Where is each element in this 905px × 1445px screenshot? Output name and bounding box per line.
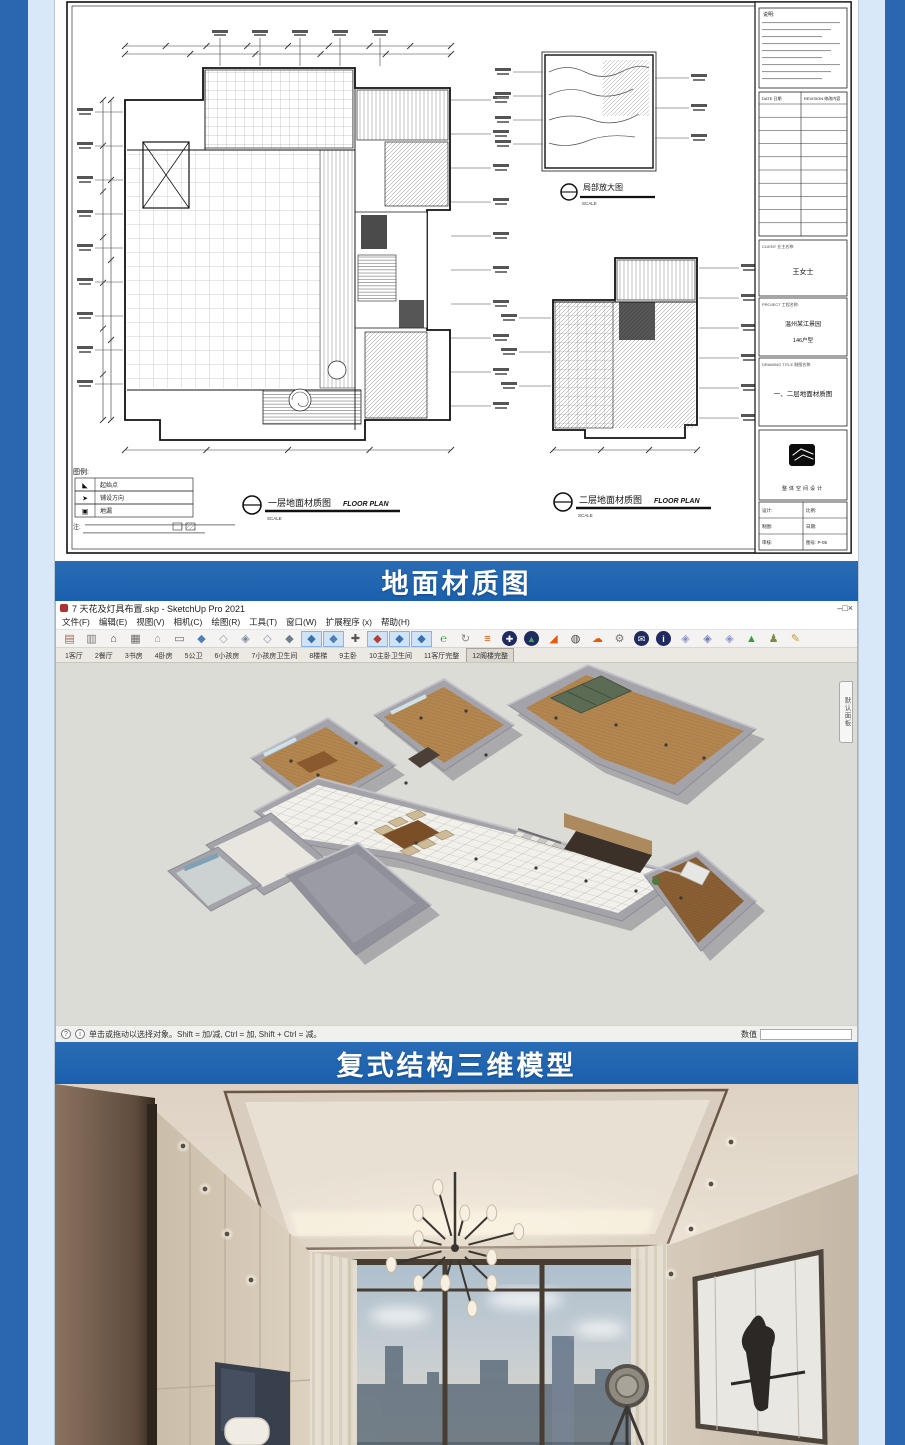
svg-text:温州某江景园: 温州某江景园 [785, 320, 821, 328]
asset-tree-icon[interactable]: ▲ [524, 631, 539, 646]
menu-item-7[interactable]: 扩展程序 (x) [326, 616, 372, 628]
plan1-first-floor [125, 68, 450, 440]
svg-text:整体空间设计: 整体空间设计 [782, 485, 824, 492]
menu-bar: 文件(F)编辑(E)视图(V)相机(C)绘图(R)工具(T)窗口(W)扩展程序 … [56, 615, 857, 630]
scene-tab-11[interactable]: 11客厅完整 [419, 649, 464, 662]
viewport-3d[interactable]: 默认面板 [56, 663, 857, 1025]
measurements-label: 数值 [741, 1029, 757, 1040]
white-chair [225, 1418, 269, 1445]
cube-hidden-icon[interactable]: ◇ [257, 631, 278, 647]
model-3d-duplex [56, 663, 857, 1025]
banner-floor-material: 地面材质图 [55, 561, 858, 601]
status-hint-text: 单击或拖动以选择对象。Shift = 加/减, Ctrl = 加, Shift … [89, 1029, 741, 1040]
svg-text:王女士: 王女士 [793, 267, 814, 276]
cad-floor-material-sheet: 一层地面材质图 FLOOR PLAN SCALE 二层地面材质图 FLOOR P… [55, 0, 858, 561]
banner-floor-material-text: 地面材质图 [382, 562, 532, 601]
scene-tabs-bar: 1客厅2餐厅3书房4卧房5公卫6小孩房7小孩房卫生间8楼梯9主卧10主卧卫生间1… [56, 648, 857, 663]
banner-duplex-model-text: 复式结构三维模型 [337, 1044, 577, 1083]
archive-box-icon[interactable]: ▦ [125, 631, 146, 647]
people-scale-icon[interactable]: ♟ [763, 631, 784, 647]
scene-tab-5[interactable]: 5公卫 [180, 649, 208, 662]
cad-drawing: 一层地面材质图 FLOOR PLAN SCALE 二层地面材质图 FLOOR P… [55, 0, 858, 561]
titleblock-field: 制图: [762, 523, 772, 530]
svg-text:一、二层地面材质图: 一、二层地面材质图 [774, 389, 833, 398]
legend-label: 地漏 [100, 507, 112, 515]
menu-item-5[interactable]: 工具(T) [249, 616, 277, 628]
curtain-left [310, 1252, 357, 1445]
render-batch-icon[interactable]: ✉ [634, 631, 649, 646]
sketchup-title-bar: 7 天花及灯具布置.skp - SketchUp Pro 2021 –□× [56, 601, 857, 615]
cube-wire-icon[interactable]: ◇ [213, 631, 234, 647]
scene-tab-8[interactable]: 8楼梯 [304, 649, 332, 662]
menu-item-3[interactable]: 相机(C) [174, 616, 203, 628]
help-icon[interactable]: ? [61, 1029, 71, 1039]
rotate-tool-icon[interactable]: ◆ [367, 631, 388, 647]
cloud-upload-icon[interactable]: ☁ [587, 631, 608, 647]
svg-text:一层地面材质图: 一层地面材质图 [268, 497, 331, 508]
svg-text:PROJECT 工程名称:: PROJECT 工程名称: [762, 301, 799, 307]
titleblock-field: 设计: [762, 507, 772, 514]
render-info-icon[interactable]: i [656, 631, 671, 646]
default-tray-tab[interactable]: 默认面板 [839, 681, 853, 743]
component-box-icon[interactable]: ▥ [81, 631, 102, 647]
svg-text:146户型: 146户型 [793, 336, 814, 344]
scene-tab-12[interactable]: 12阁楼完整 [466, 648, 514, 662]
svg-text:说明:: 说明: [763, 11, 774, 18]
scene-tab-9[interactable]: 9主卧 [334, 649, 362, 662]
cube-xray-icon[interactable]: ◈ [235, 631, 256, 647]
title-block: 说明: DATE 日期 REVISION 修改内容 CLIENT 业主名称: 王… [755, 2, 851, 553]
scene-tab-3[interactable]: 3书房 [120, 649, 148, 662]
left-wood-door [55, 1084, 155, 1445]
scene-tab-4[interactable]: 4卧房 [150, 649, 178, 662]
floor-drain-icon: ▣ [82, 509, 89, 516]
svg-text:SCALE: SCALE [582, 201, 597, 206]
analysis-mountain-icon[interactable]: ▲ [741, 631, 762, 647]
svg-text:局部放大图: 局部放大图 [583, 182, 623, 192]
info-icon[interactable]: i [75, 1029, 85, 1039]
terrain-mountain-icon[interactable]: ◢ [543, 631, 564, 647]
layers-orange-icon[interactable]: ≡ [477, 631, 498, 647]
measurements-input[interactable] [760, 1029, 852, 1040]
house-outline-icon[interactable]: ⌂ [147, 631, 168, 647]
content-column: 一层地面材质图 FLOOR PLAN SCALE 二层地面材质图 FLOOR P… [55, 0, 858, 1445]
lay-direction-icon: ➤ [82, 496, 88, 503]
status-bar: ? i 单击或拖动以选择对象。Shift = 加/减, Ctrl = 加, Sh… [56, 1025, 857, 1042]
cube-textured-icon[interactable]: ◆ [301, 631, 322, 647]
sketchup-app-icon [60, 604, 68, 612]
menu-item-1[interactable]: 编辑(E) [99, 616, 127, 628]
menu-item-4[interactable]: 绘图(R) [211, 616, 240, 628]
svg-text:二层地面材质图: 二层地面材质图 [579, 494, 642, 505]
svg-text:DRAWING TITLE 制图名称:: DRAWING TITLE 制图名称: [762, 361, 811, 367]
door-frame [147, 1104, 157, 1445]
cube-color-icon[interactable]: ◆ [323, 631, 344, 647]
home-icon[interactable]: ⌂ [103, 631, 124, 647]
svg-text:CLIENT 业主名称:: CLIENT 业主名称: [762, 243, 794, 249]
svg-text:FLOOR PLAN: FLOOR PLAN [654, 498, 700, 505]
cube-mono-icon[interactable]: ◆ [279, 631, 300, 647]
scene-tab-6[interactable]: 6小孩房 [210, 649, 245, 662]
window-title: 7 天花及灯具布置.skp - SketchUp Pro 2021 [72, 602, 837, 615]
start-point-icon: ◣ [82, 483, 88, 490]
svg-text:SCALE: SCALE [267, 516, 282, 521]
sketchup-window: 7 天花及灯具布置.skp - SketchUp Pro 2021 –□× 文件… [55, 601, 858, 1042]
promo-page: 一层地面材质图 FLOOR PLAN SCALE 二层地面材质图 FLOOR P… [0, 0, 905, 1445]
svg-text:REVISION 修改内容: REVISION 修改内容 [804, 95, 840, 101]
svg-text:DATE 日期: DATE 日期 [762, 95, 781, 101]
vray-frame-icon[interactable]: ◈ [719, 631, 740, 647]
studio-logo [789, 444, 815, 466]
detail-enlarged-view [542, 52, 656, 171]
sandbox-tools-icon[interactable]: ✎ [785, 631, 806, 647]
sync-view-icon[interactable]: ↻ [455, 631, 476, 647]
svg-text:SCALE: SCALE [578, 513, 593, 518]
menu-item-6[interactable]: 窗口(W) [286, 616, 317, 628]
titleblock-field: 审核: [762, 539, 772, 546]
tray-box-icon[interactable]: ▭ [169, 631, 190, 647]
banner-duplex-model: 复式结构三维模型 [55, 1042, 858, 1084]
add-object-icon[interactable]: ✚ [502, 631, 517, 646]
toolbar: ▤▥⌂▦⌂▭◆◇◈◇◆◆◆✚◆◆◆℮↻≡✚▲◢◍☁⚙✉i◈◈◈▲♟✎ [56, 630, 857, 648]
menu-item-0[interactable]: 文件(F) [62, 616, 90, 628]
svg-text:注:: 注: [73, 523, 81, 531]
window-controls: –□× [837, 603, 853, 613]
vray-render-icon[interactable]: ◈ [697, 631, 718, 647]
offset-tool-icon[interactable]: ◆ [411, 631, 432, 647]
scene-tab-7[interactable]: 7小孩房卫生间 [246, 649, 302, 662]
titleblock-field: 比例: [806, 507, 816, 514]
scene-tab-10[interactable]: 10主卧卫生间 [364, 649, 417, 662]
living-room-render [55, 1084, 858, 1445]
menu-item-2[interactable]: 视图(V) [136, 616, 164, 628]
svg-text:图例:: 图例: [73, 467, 89, 476]
menu-item-8[interactable]: 帮助(H) [381, 616, 410, 628]
artwork [695, 1252, 825, 1442]
material-sphere-icon[interactable]: ◍ [565, 631, 586, 647]
scene-tab-2[interactable]: 2餐厅 [90, 649, 118, 662]
cube-shaded-icon[interactable]: ◆ [191, 631, 212, 647]
legend-label: 铺设方向 [100, 494, 124, 502]
legend-label: 起始点 [100, 481, 118, 489]
scale-tool-icon[interactable]: ◆ [389, 631, 410, 647]
vray-asset-icon[interactable]: ◈ [675, 631, 696, 647]
close-button[interactable]: × [848, 603, 853, 613]
enscape-start-icon[interactable]: ℮ [433, 631, 454, 647]
model-cabinet-icon[interactable]: ▤ [59, 631, 80, 647]
svg-text:FLOOR PLAN: FLOOR PLAN [343, 501, 389, 508]
interior-render-photo [55, 1084, 858, 1445]
scene-tab-1[interactable]: 1客厅 [60, 649, 88, 662]
settings-gear-icon[interactable]: ⚙ [609, 631, 630, 647]
move-tool-icon[interactable]: ✚ [345, 631, 366, 647]
